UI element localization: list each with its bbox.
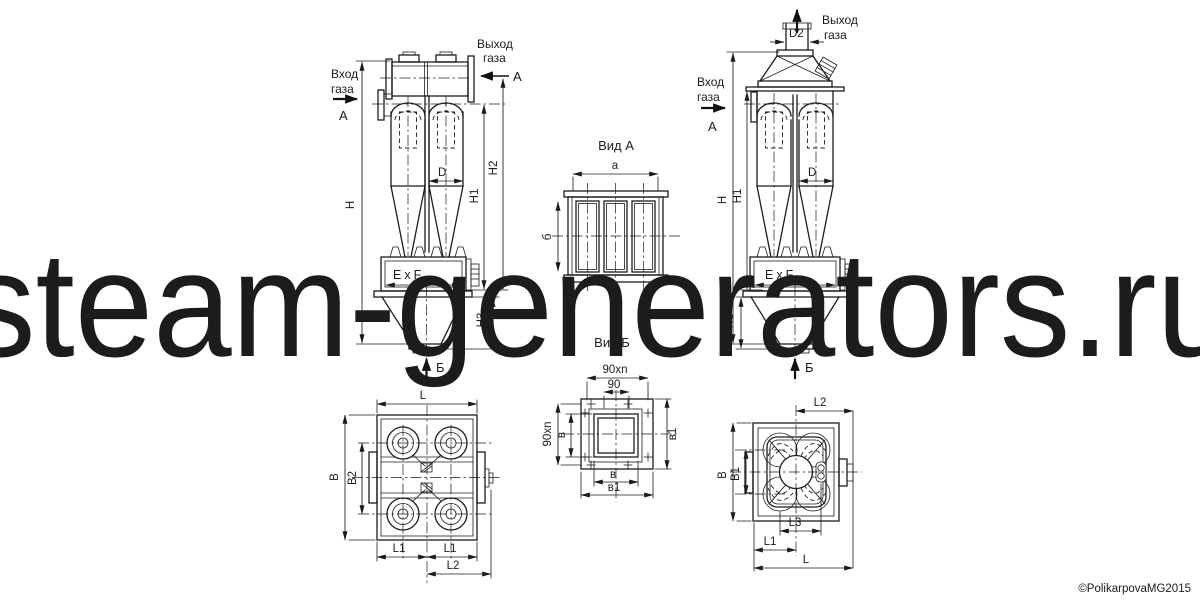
dim-label-h1-left: H1 bbox=[469, 189, 481, 204]
dim-label-b1-plan-right: B1 bbox=[730, 467, 742, 481]
dim-label-v1-side: в1 bbox=[667, 428, 679, 441]
dim-label-b-plan-right: B bbox=[717, 471, 729, 479]
copyright-text: ©PolikarpovaMG2015 bbox=[1078, 583, 1191, 595]
dim-label-v1-bottom: в1 bbox=[608, 482, 621, 494]
dim-label-h3-left: H3 bbox=[476, 313, 488, 328]
inlet-gas-label-line2: газа bbox=[331, 82, 354, 96]
plan-view-right: L2 B B1 L3 L1 L bbox=[717, 397, 862, 571]
inlet-gas-label-line1: Вход bbox=[331, 67, 358, 81]
section-b-label: Б bbox=[436, 360, 445, 375]
dim-label-l1b-plan-left: L1 bbox=[444, 543, 457, 555]
outlet-gas-label-line1: Выход bbox=[477, 37, 513, 51]
dim-label-90xn-top: 90xn bbox=[603, 364, 628, 376]
dim-label-d-left: D bbox=[438, 167, 446, 179]
dim-label-d2: D2 bbox=[789, 28, 804, 40]
dim-label-l-plan-left: L bbox=[420, 390, 427, 402]
dim-label-l3-plan-right: L3 bbox=[789, 517, 802, 529]
dim-label-h2-left: H2 bbox=[488, 161, 500, 176]
dim-label-h-left: H bbox=[345, 201, 357, 209]
dim-label-l1a-plan-left: L1 bbox=[393, 543, 406, 555]
dim-label-b2-plan-left: B2 bbox=[347, 471, 359, 485]
section-a-label-right: А bbox=[708, 119, 717, 134]
dim-label-exf-left: ExF bbox=[393, 268, 424, 282]
left-elevation-view: ExF Вход газа А Выход газа А Б H bbox=[331, 37, 522, 383]
view-b: Вид Б 90xn 90 bbox=[542, 335, 679, 502]
section-a-label-outlet: А bbox=[513, 69, 522, 84]
plan-view-left: L B B2 L1 L1 L2 bbox=[329, 390, 500, 583]
dim-label-90: 90 bbox=[608, 379, 621, 391]
dim-label-h-right: H bbox=[717, 196, 729, 204]
dim-label-l2-plan-right: L2 bbox=[814, 397, 827, 409]
drawing-layer: ExF Вход газа А Выход газа А Б H bbox=[0, 0, 1200, 600]
dim-label-d-right: D bbox=[808, 167, 816, 179]
dim-label-v-side: в bbox=[556, 432, 568, 438]
dim-label-b-plan-left: B bbox=[329, 473, 341, 481]
dim-label-exf-right: ExF bbox=[765, 268, 796, 282]
outlet-gas-label-line2-right: газа bbox=[824, 28, 847, 42]
view-b-title: Вид Б bbox=[594, 335, 630, 350]
outlet-gas-label-line2: газа bbox=[483, 51, 506, 65]
bolt-marks bbox=[581, 400, 652, 469]
right-elevation-view: Выход газа D2 Вход газа А bbox=[697, 10, 858, 383]
technical-drawing: steam-generators.ru bbox=[0, 0, 1200, 600]
view-a: Вид А а б bbox=[542, 138, 680, 291]
dim-label-90xn-side: 90xn bbox=[542, 422, 554, 447]
section-b-label-right: Б bbox=[805, 360, 814, 375]
dim-label-b-view-a: б bbox=[542, 233, 554, 240]
dim-label-l-plan-right: L bbox=[803, 554, 810, 566]
inlet-gas-label-line2-right: газа bbox=[697, 90, 720, 104]
view-a-title: Вид А bbox=[598, 138, 634, 153]
outlet-gas-label-line1-right: Выход bbox=[822, 13, 858, 27]
dim-label-v-bottom: в bbox=[610, 469, 616, 481]
dim-label-l1-plan-right: L1 bbox=[764, 536, 777, 548]
dim-label-h1-right: H1 bbox=[732, 189, 744, 204]
dim-label-l2-plan-left: L2 bbox=[447, 560, 460, 572]
dim-label-a: а bbox=[612, 160, 619, 172]
inlet-gas-label-line1-right: Вход bbox=[697, 75, 724, 89]
dim-label-h3-right: H3 bbox=[724, 314, 736, 329]
section-a-label-inlet: А bbox=[339, 108, 348, 123]
